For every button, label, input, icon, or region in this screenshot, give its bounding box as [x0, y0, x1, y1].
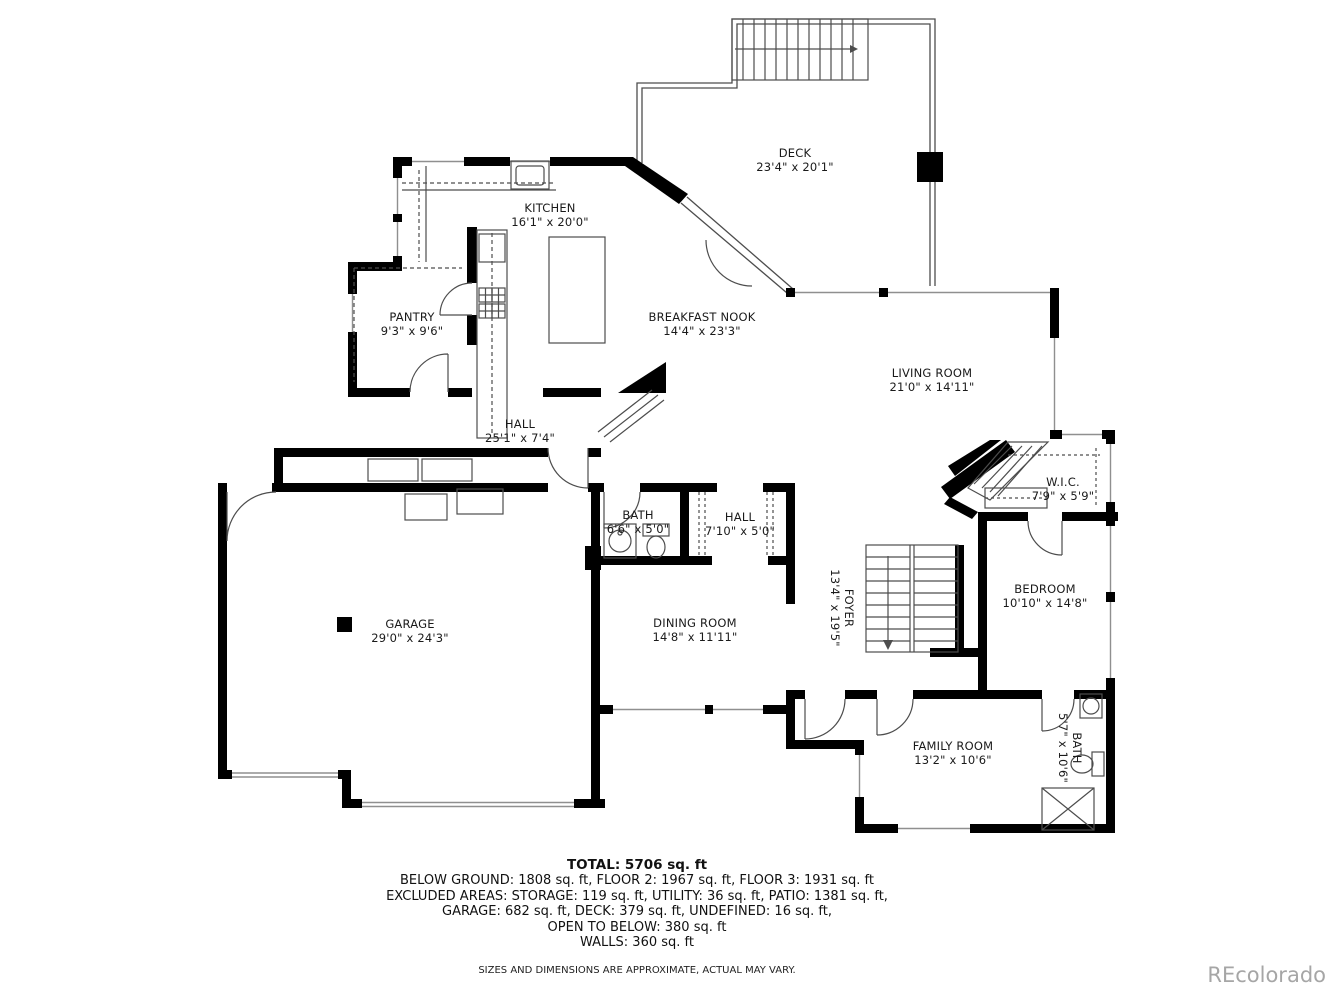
room-label-wic: W.I.C. 7'9" x 5'9" [1032, 475, 1095, 503]
foyer-stairs-icon [866, 545, 958, 652]
room-label-dining-room: DINING ROOM 14'8" x 11'11" [652, 616, 737, 644]
mudroom-bench [368, 459, 418, 481]
room-dims: 13'4" x 19'5" [828, 569, 842, 647]
room-name: PANTRY [381, 310, 444, 324]
room-dims: 10'10" x 14'8" [1002, 596, 1087, 610]
area-line: OPEN TO BELOW: 380 sq. ft [0, 920, 1274, 936]
room-name: HALL [485, 417, 555, 431]
room-dims: 7'10" x 5'0" [705, 524, 775, 538]
room-label-family-room: FAMILY ROOM 13'2" x 10'6" [913, 739, 994, 767]
room-label-garage: GARAGE 29'0" x 24'3" [371, 617, 449, 645]
total-area: TOTAL: 5706 sq. ft [0, 857, 1274, 873]
room-label-deck: DECK 23'4" x 20'1" [756, 146, 834, 174]
garage-storage [405, 494, 447, 520]
deck-stairs-icon [732, 19, 868, 80]
room-dims: 13'2" x 10'6" [913, 753, 994, 767]
recolorado-watermark: REcolorado [1207, 963, 1326, 987]
disclaimer-text: SIZES AND DIMENSIONS ARE APPROXIMATE, AC… [0, 965, 1274, 977]
room-label-living-room: LIVING ROOM 21'0" x 14'11" [889, 366, 974, 394]
garage-post [337, 617, 352, 632]
open-to-below-rail [598, 390, 664, 442]
room-label-foyer: FOYER 13'4" x 19'5" [828, 569, 856, 647]
shower-icon [1042, 788, 1094, 830]
room-label-bedroom: BEDROOM 10'10" x 14'8" [1002, 582, 1087, 610]
room-name: GARAGE [371, 617, 449, 631]
room-dims: 6'6" x 5'0" [607, 522, 670, 536]
area-line: WALLS: 360 sq. ft [0, 935, 1274, 951]
room-name: BATH [1070, 713, 1084, 783]
room-name: FOYER [842, 569, 856, 647]
room-label-hall-upper: HALL 25'1" x 7'4" [485, 417, 555, 445]
room-name: DINING ROOM [652, 616, 737, 630]
open-below-corner [618, 362, 666, 393]
mudroom-bench [422, 459, 472, 481]
room-dims: 5'7" x 10'6" [1056, 713, 1070, 783]
kitchen-island [549, 237, 605, 343]
room-label-bath-lower: BATH 5'7" x 10'6" [1056, 713, 1084, 783]
room-name: LIVING ROOM [889, 366, 974, 380]
room-dims: 16'1" x 20'0" [511, 215, 589, 229]
fixtures [227, 161, 1104, 830]
area-line: EXCLUDED AREAS: STORAGE: 119 sq. ft, UTI… [0, 889, 1274, 905]
floor-plan-drawing [0, 0, 1333, 1000]
room-dims: 7'9" x 5'9" [1032, 489, 1095, 503]
room-name: BEDROOM [1002, 582, 1087, 596]
room-name: FAMILY ROOM [913, 739, 994, 753]
walls [218, 157, 1118, 833]
room-label-hall-center: HALL 7'10" x 5'0" [705, 510, 775, 538]
room-name: BATH [607, 508, 670, 522]
room-label-pantry: PANTRY 9'3" x 9'6" [381, 310, 444, 338]
room-dims: 21'0" x 14'11" [889, 380, 974, 394]
room-name: BREAKFAST NOOK [648, 310, 755, 324]
room-dims: 25'1" x 7'4" [485, 431, 555, 445]
room-dims: 14'8" x 11'11" [652, 630, 737, 644]
floor-plan-page: DECK 23'4" x 20'1" KITCHEN 16'1" x 20'0"… [0, 0, 1333, 1000]
room-name: KITCHEN [511, 201, 589, 215]
room-label-bath-main: BATH 6'6" x 5'0" [607, 508, 670, 536]
room-name: DECK [756, 146, 834, 160]
area-line: BELOW GROUND: 1808 sq. ft, FLOOR 2: 1967… [0, 873, 1274, 889]
room-label-kitchen: KITCHEN 16'1" x 20'0" [511, 201, 589, 229]
range-counter [477, 230, 507, 438]
garage-storage [457, 489, 503, 514]
room-dims: 9'3" x 9'6" [381, 324, 444, 338]
area-line: GARAGE: 682 sq. ft, DECK: 379 sq. ft, UN… [0, 904, 1274, 920]
room-dims: 23'4" x 20'1" [756, 160, 834, 174]
room-label-breakfast-nook: BREAKFAST NOOK 14'4" x 23'3" [648, 310, 755, 338]
deck-post [917, 152, 943, 182]
area-summary: TOTAL: 5706 sq. ft BELOW GROUND: 1808 sq… [0, 857, 1274, 977]
room-name: W.I.C. [1032, 475, 1095, 489]
room-dims: 14'4" x 23'3" [648, 324, 755, 338]
room-name: HALL [705, 510, 775, 524]
room-dims: 29'0" x 24'3" [371, 631, 449, 645]
